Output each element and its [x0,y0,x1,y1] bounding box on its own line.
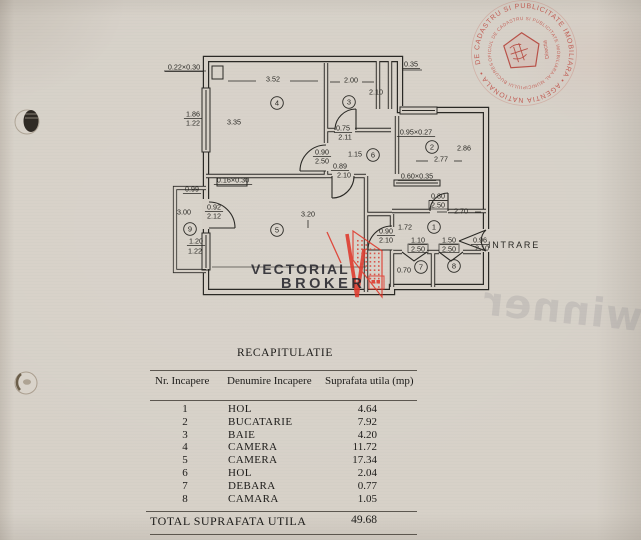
scanned-document-page: winner [0,0,641,540]
dim-label: 0.99 [185,185,199,194]
dim-label: 2.11 [338,133,351,142]
stamp-direction-text: Directia [542,39,551,59]
cell-room-name: CAMERA [228,454,277,466]
dim-label: 0.90 [315,148,329,157]
dim-label: 3.20 [301,210,315,219]
dim-label: 0.89 [333,162,347,171]
dim-label: 0.75 [336,124,350,133]
room-number: 2 [430,143,434,152]
hole-punch-top [15,110,39,134]
dim-label: 2.10 [379,236,393,245]
dim-label: 2.70 [454,207,468,216]
cell-room-name: HOL [228,403,252,415]
dim-label: 2.10 [369,88,383,97]
watermark-vectorial: VECTORIAL [251,261,350,277]
dim-label: 1.50 [442,236,456,245]
dim-label: 0.90 [379,227,393,236]
cell-area: 1.05 [317,493,377,505]
cell-area: 2.04 [317,467,377,479]
cell-number: 2 [175,416,195,428]
watermark-broker: BROKER [281,276,365,292]
room-number: 5 [275,226,279,235]
cell-number: 6 [175,467,195,479]
cell-room-name: BUCATARIE [228,416,292,428]
cell-area: 4.20 [317,429,377,441]
dim-label: 0.22×0.30 [168,63,200,72]
dim-label: INTRARE [488,240,540,250]
dim-label: 2.10 [475,244,489,253]
table-rule-header [150,400,417,401]
dim-label: 0.70 [397,266,411,275]
dim-label: 2.50 [315,157,329,166]
cell-number: 8 [175,493,195,505]
dim-label: 2.50 [411,245,425,254]
dim-label: 2.77 [434,155,448,164]
dim-label: 2.50 [431,201,445,210]
dim-label: 3.00 [177,208,191,217]
room-number: 1 [432,223,436,232]
room-number: 3 [347,98,351,107]
dim-label: 0.92 [207,203,221,212]
table-row: 7DEBARA0.77 [150,480,417,492]
cell-area: 0.77 [317,480,377,492]
window-symbols [202,66,440,270]
cell-room-name: CAMERA [228,441,277,453]
cell-number: 7 [175,480,195,492]
cell-number: 5 [175,454,195,466]
table-rows: 1HOL4.642BUCATARIE7.923BAIE4.204CAMERA11… [150,403,417,507]
cell-room-name: CAMARA [228,493,279,505]
room-number: 6 [371,151,375,160]
dim-label: 0.80 [431,192,445,201]
table-row: 3BAIE4.20 [150,429,417,441]
cell-number: 1 [175,403,195,415]
table-row: 5CAMERA17.34 [150,454,417,466]
table-row: 2BUCATARIE7.92 [150,416,417,428]
table-rule-top [150,370,417,371]
certification-stamp: DE CADASTRU SI PUBLICITATE IMOBILIARA • … [7,0,591,265]
table-title: RECAPITULATIE [237,347,333,359]
cell-room-name: BAIE [228,429,255,441]
dim-label: 2.50 [442,245,456,254]
room-number: 4 [275,99,279,108]
dim-label: 1.22 [188,247,202,256]
column-header-nr: Nr. Incapere [155,375,209,387]
hole-punch-bottom [15,372,37,394]
cell-room-name: DEBARA [228,480,276,492]
cell-number: 4 [175,441,195,453]
cell-area: 11.72 [317,441,377,453]
stamp-center-emblem [502,29,545,74]
cell-room-name: HOL [228,467,252,479]
table-rule-bottom [150,534,417,535]
table-rule-above-total [146,511,417,512]
table-row: 1HOL4.64 [150,403,417,415]
table-row: 6HOL2.04 [150,467,417,479]
dim-label: 0.60×0.35 [401,172,433,181]
cell-area: 17.34 [317,454,377,466]
dim-label: 3.35 [227,118,241,127]
dim-label: 1.72 [398,223,412,232]
dim-label: 0.35 [404,60,418,69]
dim-label: 2.12 [207,212,221,221]
dim-label: 1.10 [411,236,425,245]
table-row: 8CAMARA1.05 [150,493,417,505]
dim-label: 0.16×0.30 [217,176,249,185]
cell-number: 3 [175,429,195,441]
dim-label: 0.95×0.27 [400,128,432,137]
dim-label: 1.15 [348,150,362,159]
pillar-022x030 [212,66,223,79]
dim-label: 3.52 [266,75,280,84]
dim-label: 2.10 [337,171,351,180]
room-number: 8 [452,262,456,271]
total-value: 49.68 [337,514,377,526]
total-label: TOTAL SUPRAFATA UTILA [150,514,306,529]
cell-area: 7.92 [317,416,377,428]
room-number: 7 [419,263,423,272]
room-number: 9 [188,225,192,234]
column-header-denumire: Denumire Incapere [227,375,312,387]
dim-label: 1.20 [189,237,203,246]
dim-label: 2.00 [344,76,358,85]
column-header-suprafata: Suprafata utila (mp) [325,375,414,387]
dim-label: 2.86 [457,144,471,153]
cell-area: 4.64 [317,403,377,415]
dim-label: 1.86 [186,110,200,119]
table-row: 4CAMERA11.72 [150,441,417,453]
dim-label: 1.22 [186,119,200,128]
